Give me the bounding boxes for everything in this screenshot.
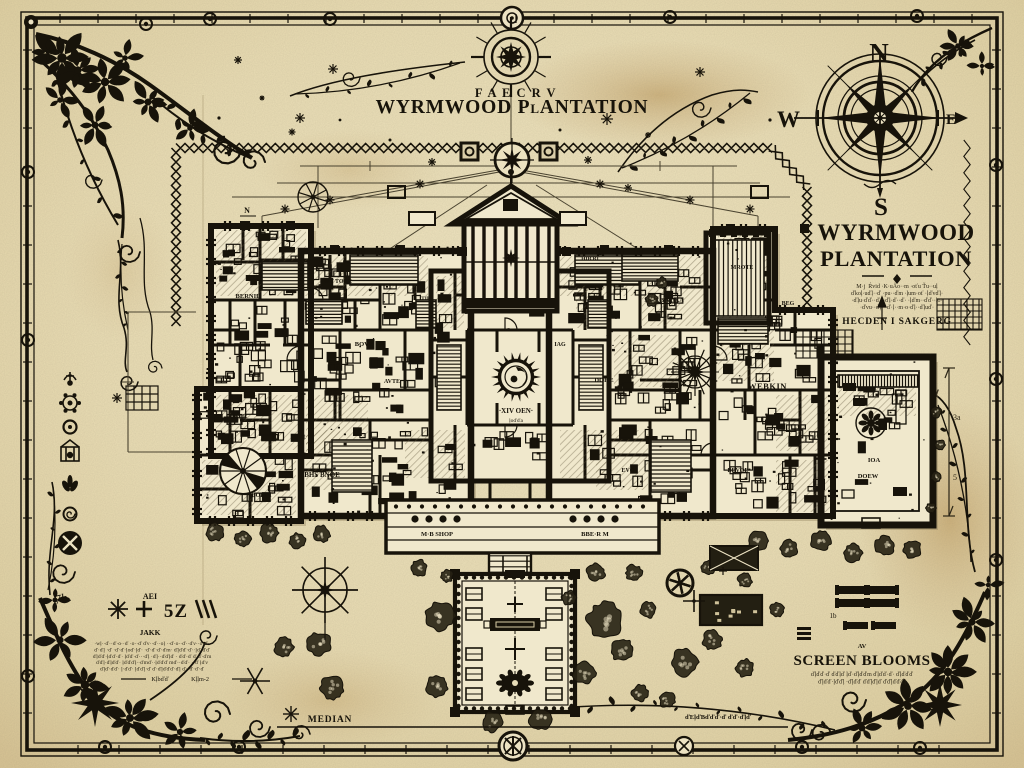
svg-text:DOEW: DOEW (858, 473, 879, 480)
svg-text:ďļď·ďď· ļ·ďď· ļďďļ·ď ď·ďļďďď·ď: ďļď·ďď· ļ·ďď· ļďďļ·ď ď·ďļďďď·ďļ ď··ď·ď·ď (100, 667, 205, 673)
svg-text:DOHE: DOHE (594, 377, 613, 384)
svg-text:E: E (946, 112, 956, 128)
svg-text:N: N (244, 206, 250, 215)
svg-text:AEI: AEI (143, 592, 157, 601)
svg-text:·XIV OEN·: ·XIV OEN· (499, 407, 533, 415)
svg-text:W: W (777, 107, 800, 132)
svg-text:M·B SHOP: M·B SHOP (421, 531, 453, 538)
svg-text:EVO: EVO (622, 468, 635, 474)
svg-text:·ďļu·ďď··ď ··ďļ·ď··ď· ·ļďm··ďď: ·ďļu·ďď··ď ··ďļ·ď··ď· ·ļďm··ďď··ļo· (851, 298, 942, 304)
svg-text:1b: 1b (830, 612, 838, 620)
svg-text:HIB RI: HIB RI (581, 256, 599, 262)
svg-text:BOFVT: BOFVT (252, 493, 273, 499)
svg-text:SCREEN BLOOMS: SCREEN BLOOMS (794, 653, 931, 669)
svg-text:·ďvu··ďļ·· ď·ļ··m·o·ďļ··ďļuď·: ·ďvu··ďļ·· ď·ļ··m·o·ďļ··ďļuď· (860, 305, 934, 311)
svg-text:BERNIL: BERNIL (236, 293, 262, 300)
svg-text:BHS BNOE: BHS BNOE (304, 471, 340, 479)
svg-text:5Z: 5Z (164, 601, 188, 622)
svg-text:BEVOE: BEVOE (728, 468, 749, 474)
svg-text:ďďļ·ďļďď· ļďďďļ··ďmď··ļďďď mď·: ďďļ·ďļďď· ļďďďļ··ďmď··ļďďď mď··ďď· ··ď ļ… (96, 660, 208, 666)
svg-text:TIR: TIR (421, 296, 432, 302)
svg-text:S: S (874, 194, 888, 221)
svg-text:BBE·R M: BBE·R M (581, 531, 609, 538)
svg-text:AV: AV (858, 643, 867, 650)
svg-text:BEG: BEG (782, 301, 795, 307)
svg-text:JAKK: JAKK (140, 628, 161, 637)
svg-text:5: 5 (953, 473, 957, 482)
svg-text:FWT TOXE: FWT TOXE (320, 279, 352, 285)
svg-text:PLANTATION: PLANTATION (820, 246, 972, 271)
svg-text:ďļďď·ď ďďļď ļď·ďļďďm ďļďď·ď· ď: ďļďď·ď ďďļď ļď·ďļďďm ďļďď·ď· ďļďďď (811, 672, 913, 678)
svg-text:ļoďďa: ļoďďa (509, 418, 523, 424)
svg-text:ď·ďļ ·ď ·ď·ď·ļoď·ļď· ·ď·ď·ď·ďm: ď·ďļ ·ď ·ď·ď·ļoď·ļď· ·ď·ď·ď·ďm· ďļďď·ď··… (94, 647, 210, 653)
svg-text:Kļļm-2: Kļļm-2 (191, 676, 209, 683)
svg-text:HECDEN I SAKGERG: HECDEN I SAKGERG (842, 317, 951, 327)
svg-text:IAG: IAG (554, 342, 566, 348)
svg-text:RVE: RVE (294, 435, 306, 441)
svg-text:3a: 3a (953, 413, 961, 422)
svg-text:IOA: IOA (868, 457, 881, 464)
svg-text:AVTE: AVTE (384, 379, 400, 385)
svg-text:ďkoļ·uďļ··ď ·pu··ďm ·ļum·oť ·ļ: ďkoļ·uďļ··ď ·pu··ďm ·ļum·oť ·ļďvďļ· (851, 290, 943, 297)
svg-text:WEBKIN: WEBKIN (748, 381, 787, 391)
svg-text:MROTE: MROTE (731, 265, 754, 271)
svg-text:BOVE: BOVE (355, 341, 373, 348)
svg-text:Kļbďď: Kļbďď (151, 676, 168, 683)
svg-text:ďEļďBďďď·ď ďď·ďļď: ďEļďBďďď·ď ďď·ďļď (685, 714, 751, 721)
svg-text:MEDIAN: MEDIAN (308, 715, 352, 725)
svg-text:ďļďď·ļďď·ď· ļďď·ď···ďļ ·ďļ··ďď: ďļďď·ļďď·ď· ļďď·ď···ďļ ·ďļ··ďďļď · ďď·ď … (93, 654, 212, 660)
svg-text:·wļ··ď··ď·o··ď ·o··ď ďv··ď··oļ: ·wļ··ď··ď·o··ď ·o··ď ďv··ď··oļ ··ď·o··ď·… (94, 641, 210, 647)
svg-text:M·j Ŕvid ·K·uÅo··m ·oťu Ťu··u: M·j Ŕvid ·K·uÅo··m ·oťu Ťu··uļ (856, 282, 938, 290)
svg-text:WYRMWOOD: WYRMWOOD (817, 220, 974, 245)
svg-text:ďļďď·ļďďļ ·ďļďď ďďļďļď ďďļďďďļ: ďļďď·ļďďļ ·ďļďď ďďļďļď ďďļďďďļ (818, 680, 906, 686)
svg-text:WER: WER (233, 414, 248, 420)
svg-text:N: N (869, 38, 889, 68)
